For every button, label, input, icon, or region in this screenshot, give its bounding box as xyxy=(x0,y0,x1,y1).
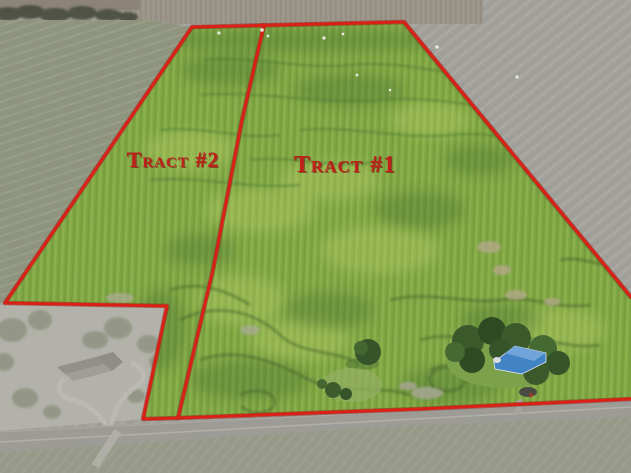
aerial-photo-canvas: Tract #2 Tract #2 Tract #1 Tract #1 xyxy=(0,0,631,473)
vehicle xyxy=(519,387,537,397)
tract-2-label: Tract #2 xyxy=(127,147,220,172)
top-field-strip xyxy=(118,0,483,24)
tract-1-label: Tract #1 xyxy=(294,152,396,178)
aerial-tract-photo: Tract #2 Tract #2 Tract #1 Tract #1 xyxy=(0,0,631,473)
